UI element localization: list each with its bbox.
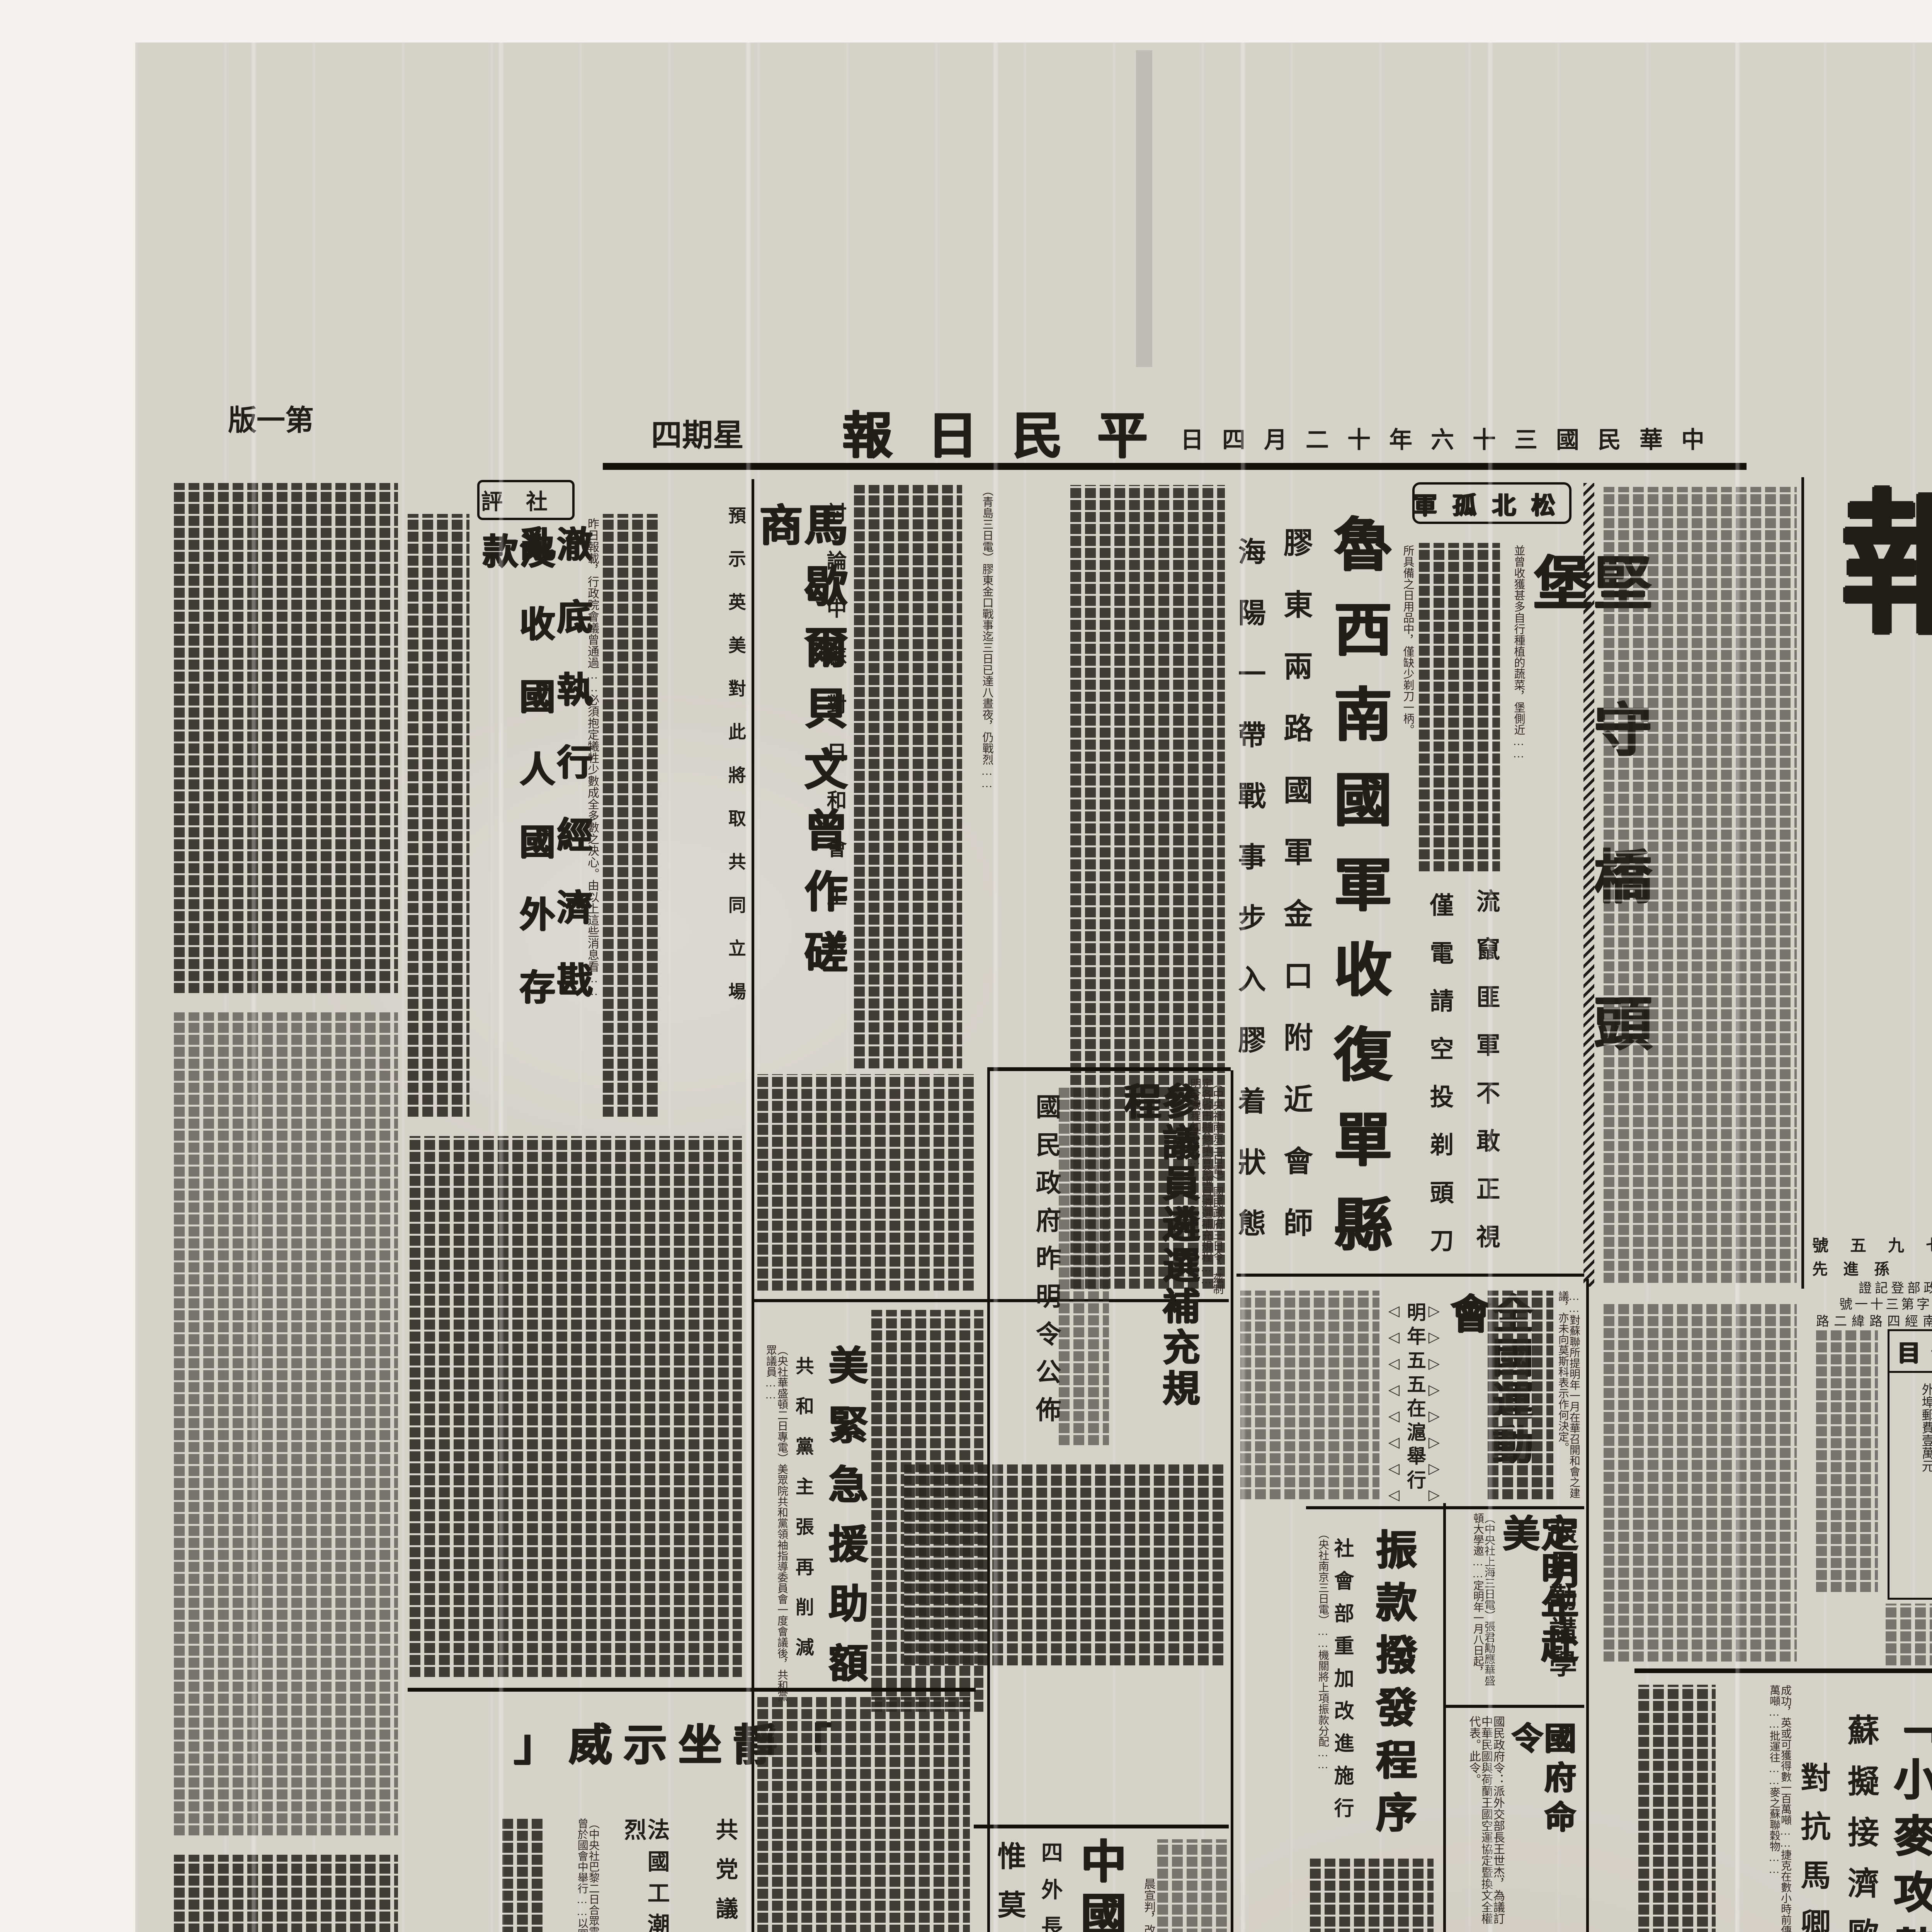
section-rule bbox=[1236, 1274, 1584, 1277]
nameplate-address: 路二緯路四經南濟：址社 bbox=[1816, 1311, 1932, 1330]
editorial-label-text: 評社 bbox=[481, 485, 571, 516]
text-texture bbox=[174, 483, 398, 993]
rules-subhead: 國民政府昨明令公佈 bbox=[1032, 1094, 1059, 1441]
usaid-body-opening: （央社華盛頓二日專電）美眾院共和黨領袖指導委員會一度會議後，共和黨眾議員…… bbox=[757, 1345, 787, 1708]
nameplate-publisher: 先進孫 人行發 bbox=[1812, 1257, 1932, 1279]
column-rule bbox=[1231, 1070, 1233, 1932]
text-texture bbox=[757, 1074, 974, 1291]
text-texture bbox=[757, 1696, 970, 1932]
column-rule bbox=[1586, 1279, 1589, 1932]
column-rule bbox=[1443, 1503, 1446, 1932]
phone-postage: 外埠郵費壹萬元 bbox=[1917, 1383, 1932, 1592]
text-texture bbox=[1240, 1291, 1379, 1499]
text-texture bbox=[1604, 1302, 1797, 1662]
songbei-box-label: 軍孤北松 bbox=[1412, 482, 1571, 524]
phone-price-box: 目價話電 社長室 三三二三 編輯部 二五七六 營業部 三二二一 印刷所 六九二 … bbox=[1888, 1329, 1932, 1600]
text-texture bbox=[1157, 1839, 1227, 1932]
sitin-body-opening: （中央社巴黎二日合眾電）院已不見共產黨眾議員，彼等曾於國會中舉行……以圖…… bbox=[553, 1818, 599, 1932]
section-rule bbox=[974, 1825, 1229, 1828]
germany-subhead: 惟莫洛托夫獨表反對 bbox=[994, 1841, 1024, 1932]
column-rule bbox=[987, 1070, 990, 1932]
text-texture bbox=[1816, 1329, 1878, 1592]
text-texture bbox=[1488, 1291, 1553, 1499]
usaid-headline: 美緊急援助額 bbox=[824, 1345, 865, 1704]
dateline: 日四月二十年六十三國民華中 bbox=[1180, 421, 1723, 455]
marshall-headline: 馬歇爾貝文曾作磋商 bbox=[754, 502, 844, 1051]
text-texture bbox=[1310, 1859, 1434, 1932]
text-texture bbox=[854, 485, 962, 1068]
relief-body-opening: （央社南京三日電）……機關將上項振款分配…… bbox=[1309, 1528, 1328, 1837]
section-rule bbox=[1634, 1668, 1932, 1673]
zhang-headline: 定明年赴美 bbox=[1498, 1514, 1576, 1696]
weekday-label: 四期星 bbox=[651, 410, 744, 455]
paper-name-horizontal: 報日民平 bbox=[842, 395, 1182, 468]
games-deco-left: ◁◁◁◁◁◁◁◁ bbox=[1386, 1302, 1401, 1495]
gov-order-body: 國民政府令：派外交部長王世杰，為議訂中華民國與荷蘭王國空運協定暨換文全權代表。此… bbox=[1450, 1716, 1504, 1924]
moscow-reply-fragment: ……對蘇聯所提明年一月在華召開和會之建議，亦未向莫斯科表示作何決定。 bbox=[1556, 1291, 1580, 1499]
marshall-subhead: 預示英美對此將取共同立場 bbox=[726, 506, 745, 1047]
text-texture bbox=[1638, 1685, 1716, 1932]
songbei-body-fragment: 所具備之日用品中，僅缺少剃刀一柄。 bbox=[1398, 545, 1413, 815]
wheat-subhead-1: 蘇擬接濟歐洲 bbox=[1844, 1714, 1877, 1932]
luxinan-subhead-2: 海陽一帶戰事步入膠着狀態 bbox=[1235, 537, 1264, 1271]
sitin-subhead-1: 共党議員反對 bbox=[713, 1818, 736, 1932]
column-rule bbox=[1801, 477, 1804, 1289]
jiaodong-war-body-opening: （青島三日電）膠東金口戰事迄三日已達八晝夜，仍戰烈…… bbox=[968, 485, 993, 1065]
text-texture bbox=[1419, 543, 1500, 871]
chen-verdict-fragment: 晨宣判，改處無期徒刑 bbox=[1139, 1878, 1155, 1932]
edition-label: 版一第 bbox=[228, 397, 314, 439]
nameplate-registration-no: 號一十三第字會警京 bbox=[1839, 1294, 1932, 1313]
phone-box-entries: 社長室 三三二三 編輯部 二五七六 營業部 三二二一 印刷所 六九二 外埠郵費壹… bbox=[1889, 1373, 1932, 1602]
nameplate-issue: 號五九七五第 bbox=[1812, 1233, 1932, 1256]
text-texture bbox=[1886, 1604, 1932, 1665]
games-subhead: 明年五五在滬舉行 bbox=[1405, 1302, 1425, 1495]
editorial-box-label: 評社 bbox=[477, 480, 575, 520]
wheat-subhead-2: 對抗馬卿計劃 bbox=[1798, 1762, 1829, 1932]
masthead-rule bbox=[603, 463, 1747, 470]
text-texture bbox=[502, 1818, 545, 1932]
newspaper-page: 版一第 四期星 報日民平 日四月二十年六十三國民華中 平民日報 號五九七五第 先… bbox=[0, 0, 1932, 1932]
rules-body-opening: （中央社南京三日電）國民政府三日令：茲制定各省市縣參議會參議員遴選補充規程……明… bbox=[1173, 1078, 1223, 1294]
relief-headline: 振款撥發程序 bbox=[1371, 1528, 1413, 1845]
germany-headline: 中國應參加對德和會 bbox=[1075, 1837, 1122, 1932]
usaid-subhead: 共和黨主張再削減 bbox=[793, 1356, 812, 1696]
section-rule bbox=[1445, 1705, 1584, 1708]
editorial-body-opening: 昨日報載，行政院會議曾通過……必須抱定犧牲少數成全多數之決心。由以上這些消息看…… bbox=[561, 518, 598, 1109]
section-rule bbox=[987, 1067, 1231, 1071]
scan-fold-mark bbox=[1136, 50, 1152, 367]
nameplate-title: 平民日報 bbox=[1822, 483, 1932, 1229]
songbei-label-text: 軍孤北松 bbox=[1413, 486, 1571, 520]
songbei-body-opening: 並曾收獲甚多自行種植的蔬菜，堡側近…… bbox=[1504, 545, 1524, 877]
section-rule bbox=[408, 1688, 976, 1692]
sitin-subhead-2: 法國工潮愈演愈烈 bbox=[621, 1818, 668, 1932]
zhang-body-opening: （中央社上海三日電）張君勱應華盛頓大學邀……定明年一月八日起， bbox=[1448, 1513, 1495, 1694]
phone-box-header: 目價話電 bbox=[1889, 1331, 1932, 1373]
text-texture bbox=[603, 514, 661, 1117]
relief-subhead: 社會部重加改進施行 bbox=[1331, 1538, 1352, 1843]
games-deco-right: ▷▷▷▷▷▷▷▷ bbox=[1426, 1302, 1441, 1495]
luxinan-headline: 魯西南國軍收復單縣 bbox=[1327, 514, 1388, 1283]
zigzag-divider bbox=[1583, 483, 1594, 1287]
editorial-headline-2: 沒收國人國外存款 bbox=[478, 532, 552, 1112]
germany-kicker: 四外長會議英美法一致主張 bbox=[1039, 1841, 1061, 1932]
text-texture bbox=[408, 514, 469, 1117]
songbei-subhead-1: 流竄匪軍不敢正視 bbox=[1473, 889, 1498, 1279]
songbei-subhead-2: 僅電請空投剃頭刀 bbox=[1427, 893, 1451, 1283]
text-texture bbox=[904, 1464, 1225, 1665]
wheat-body-fragment: 成功，英或可獲得數一百萬噸……捷克在數小時前傳來消息謂……明年四月另以二十萬噸…… bbox=[1721, 1685, 1791, 1932]
luxinan-subhead-1: 膠東兩路國軍金口附近會師 bbox=[1280, 527, 1310, 1273]
text-texture bbox=[174, 1855, 398, 1932]
text-texture bbox=[1059, 1086, 1109, 1445]
text-texture bbox=[1604, 487, 1797, 1283]
text-texture bbox=[174, 1012, 398, 1835]
wheat-headline: 「小麥攻勢」 bbox=[1889, 1700, 1932, 1932]
text-texture bbox=[410, 1136, 742, 1677]
gov-order-headline: 國府命令 bbox=[1508, 1721, 1574, 1876]
